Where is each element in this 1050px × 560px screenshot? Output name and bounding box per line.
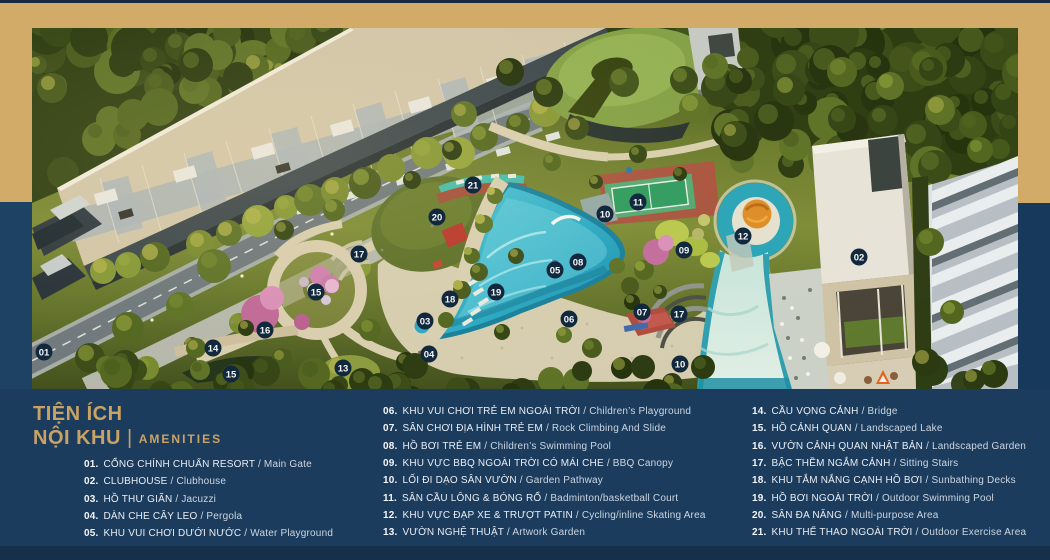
svg-text:07: 07 <box>637 307 648 318</box>
svg-text:11: 11 <box>633 197 644 208</box>
svg-text:06: 06 <box>564 314 575 325</box>
svg-text:17: 17 <box>674 309 685 320</box>
svg-text:08: 08 <box>573 257 584 268</box>
svg-text:18: 18 <box>445 294 456 305</box>
svg-text:19: 19 <box>491 287 502 298</box>
svg-text:04: 04 <box>424 349 435 360</box>
svg-text:21: 21 <box>468 180 479 191</box>
svg-text:03: 03 <box>420 316 431 327</box>
svg-text:15: 15 <box>311 287 322 298</box>
svg-text:14: 14 <box>208 343 219 354</box>
svg-text:15: 15 <box>226 369 237 380</box>
svg-text:01: 01 <box>39 347 50 358</box>
svg-text:10: 10 <box>675 359 686 370</box>
svg-text:13: 13 <box>338 363 349 374</box>
svg-text:12: 12 <box>738 231 749 242</box>
svg-text:10: 10 <box>600 209 611 220</box>
svg-text:09: 09 <box>679 245 690 256</box>
svg-text:05: 05 <box>550 265 561 276</box>
svg-text:20: 20 <box>432 212 443 223</box>
svg-text:02: 02 <box>854 252 865 263</box>
svg-text:16: 16 <box>260 325 271 336</box>
svg-text:17: 17 <box>354 249 365 260</box>
